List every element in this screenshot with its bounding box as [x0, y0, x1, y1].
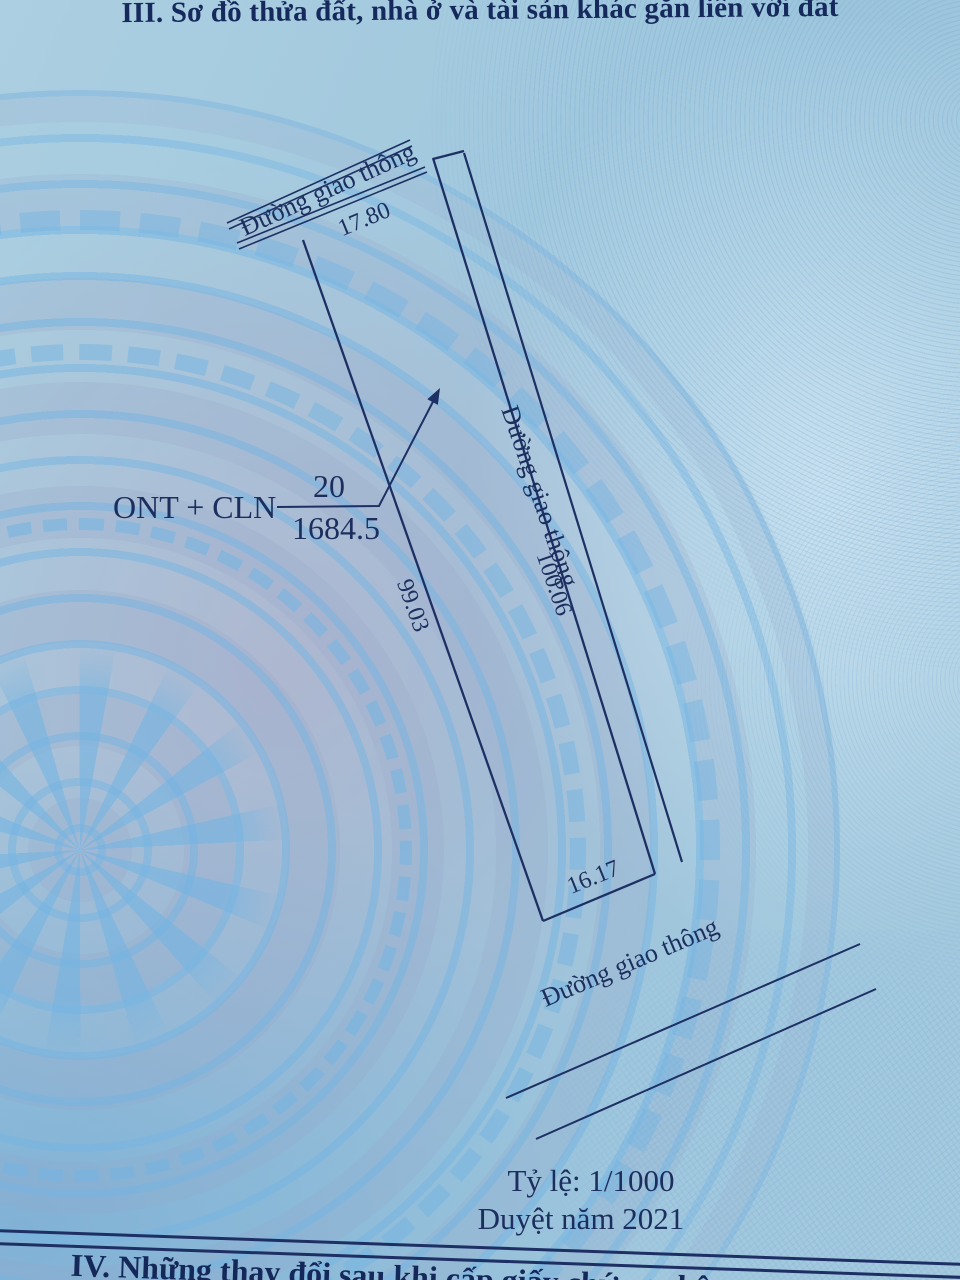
parcel-left-edge	[303, 240, 543, 921]
parcel-bottom-dimension: 16.17	[563, 855, 623, 899]
right-road-top-cap-line	[433, 151, 464, 159]
approval-year-label: Duyệt năm 2021	[478, 1201, 685, 1236]
right-road-outer-line	[464, 153, 682, 862]
parcel-sketch-diagram: Đường giao thông 17.80 Đường giao thông …	[0, 0, 960, 1280]
parcel-area: 1684.5	[292, 510, 380, 546]
parcel-label-leader-line	[277, 392, 438, 507]
land-certificate-page: III. Sơ đồ thửa đất, nhà ở và tài sản kh…	[0, 0, 960, 1280]
parcel-left-dimension: 99.03	[391, 576, 434, 636]
land-use-label: ONT + CLN	[113, 489, 276, 525]
leader-arrowhead-icon	[427, 388, 440, 405]
parcel-number: 20	[313, 468, 345, 504]
parcel-top-dimension: 17.80	[334, 197, 394, 242]
bottom-road-label: Đường giao thông	[537, 912, 723, 1013]
scale-label: Tỷ lệ: 1/1000	[507, 1163, 674, 1198]
top-road-label: Đường giao thông	[235, 137, 420, 242]
